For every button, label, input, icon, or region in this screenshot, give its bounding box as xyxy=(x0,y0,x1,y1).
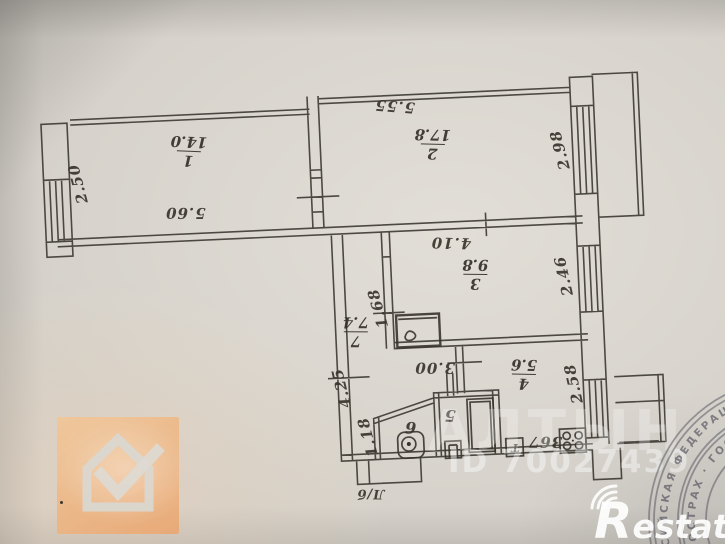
room-area: 14.0 xyxy=(170,133,207,152)
restate-waves-icon xyxy=(588,480,622,510)
room-number: 2 xyxy=(420,144,445,162)
dim-room3-width: 4.10 xyxy=(431,233,472,252)
dim-room1-width: 5.60 xyxy=(165,204,206,222)
loggia-mark: Л/б xyxy=(356,486,385,501)
room-label-4: 4 5.6 xyxy=(510,356,537,392)
dim-room2-width: 5.55 xyxy=(374,96,416,117)
room-label-7: 7 7.4 xyxy=(343,314,369,349)
room-number: 1 xyxy=(176,151,201,170)
room-label-6: 6 xyxy=(405,418,417,437)
dim-hall-width: 3.00 xyxy=(414,359,455,377)
room-area: 17.8 xyxy=(414,126,451,144)
restate-logo: Restate xyxy=(594,496,725,544)
listing-id-watermark: ID 70027439 xyxy=(448,444,691,480)
room-label-2: 2 17.8 xyxy=(414,126,451,162)
scanned-floorplan-photo: 1 14.0 2 17.8 3 9.8 4 5.6 7 7.4 6 5 5.60… xyxy=(0,0,725,544)
room-label-3: 3 9.8 xyxy=(462,257,488,292)
room-number: 7 xyxy=(343,332,368,350)
room-label-1: 1 14.0 xyxy=(170,133,208,169)
room-area: 7.4 xyxy=(343,314,369,332)
room-area: 9.8 xyxy=(462,257,488,275)
room-area: 5.6 xyxy=(511,356,538,374)
room-number: 4 xyxy=(511,374,536,392)
room-number: 3 xyxy=(463,274,488,292)
